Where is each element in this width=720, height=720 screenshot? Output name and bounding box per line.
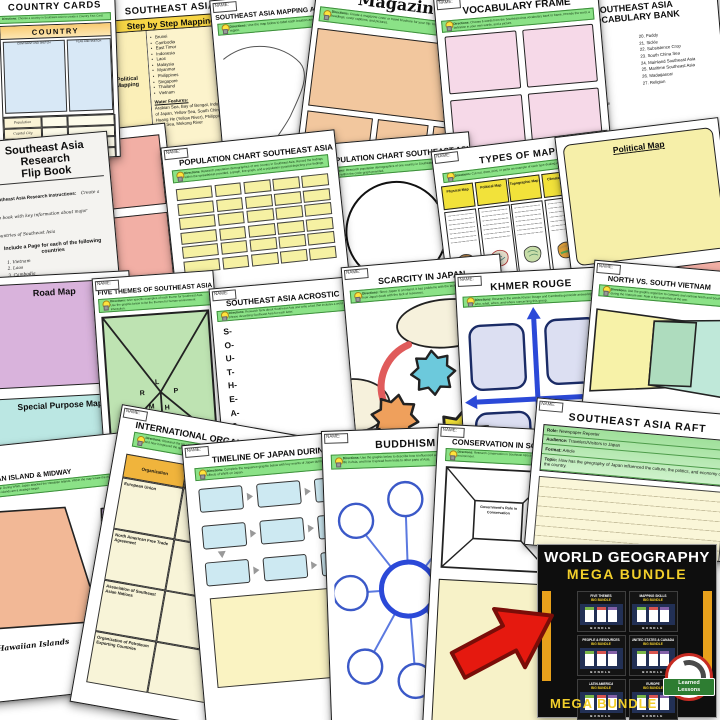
red-arrow-arc [378, 345, 414, 402]
mini-page [597, 607, 606, 622]
vocab-list-right: 20. Paddy21. Sickle22. Subsistence Crop2… [638, 18, 720, 124]
name-field: NAME: [324, 433, 349, 443]
bundle-footer: BUNDLE [590, 714, 612, 718]
raft-field-label: Audience: [546, 437, 568, 444]
bundle-footer: BUNDLE [642, 626, 664, 630]
theme-letter: P [173, 388, 178, 395]
sketch-box-continent: CONTINENT AND SKETCH [3, 40, 67, 114]
sequence-box [259, 517, 305, 545]
logo-banner: Learned Lessons [663, 678, 715, 696]
grid-cell [249, 237, 277, 252]
grid-cell [216, 197, 244, 212]
raft-field-label: Role: [547, 427, 558, 433]
lightbulb-icon [448, 450, 456, 460]
bundle-subtitle: BIG BUNDLE [591, 642, 611, 646]
grid-cell [179, 214, 216, 230]
compare-contrast-diagram [587, 301, 720, 409]
directions-text: Give specific examples of each theme for… [110, 293, 203, 311]
bundle-subtitle: BIG BUNDLE [591, 598, 611, 602]
lightbulb-icon [220, 24, 228, 35]
raft-field-value: Article [562, 448, 575, 454]
grid-cell [248, 223, 276, 238]
name-field: NAME: [457, 276, 482, 287]
lightbulb-icon [101, 300, 109, 310]
grid-cell [307, 231, 335, 246]
mini-page [637, 607, 646, 622]
directions-label: Directions: [454, 172, 471, 178]
grid-cell [220, 240, 248, 255]
grid-cell [177, 200, 214, 216]
arrow-right-icon [311, 561, 318, 569]
bundle-preview [580, 604, 623, 625]
lightbulb-icon [322, 9, 330, 20]
name-field: NAME: [539, 401, 564, 413]
gear-icon [409, 349, 457, 397]
name-field: NAME: [596, 263, 621, 275]
lightbulb-icon [444, 21, 452, 32]
bundle-subtitle: BIG BUNDLE [643, 598, 663, 602]
sketch-label: FLAG AND SKETCH [68, 39, 110, 43]
arrow-right-icon [250, 529, 257, 537]
bundle-footer: BUNDLE [642, 670, 664, 674]
lightbulb-icon [175, 171, 183, 182]
bundle-subtitle: BIG BUNDLE [643, 686, 663, 690]
name-field: NAME: [95, 280, 120, 291]
arrow-right-icon [247, 492, 254, 500]
grid-cell [275, 205, 303, 220]
logo-text-line1: Learned [664, 680, 714, 687]
bundle-thumbnail[interactable]: MAPPING SKILLS BIG BUNDLE BUNDLE [629, 591, 678, 632]
grid-cell [274, 191, 302, 206]
sequence-box [198, 485, 244, 513]
org-name: Organization of Petroleum Exporting Coun… [86, 631, 156, 693]
frame-box [444, 30, 520, 94]
mini-page [660, 695, 669, 710]
lightbulb-icon [445, 172, 453, 183]
directions-text: Choose a country in Southeast Asia to cr… [18, 13, 104, 20]
bundle-subtitle: BIG BUNDLE [643, 642, 663, 646]
lightbulb-icon [353, 291, 361, 302]
grid-cell [272, 176, 300, 191]
bundle-thumbnail[interactable]: PEOPLE & RESOURCES BIG BUNDLE BUNDLE [577, 635, 626, 676]
grid-cell [280, 248, 308, 263]
political-map-box: Political Map [562, 127, 720, 266]
bundle-footer: BUNDLE [590, 626, 612, 630]
logo-text-line2: Lessons [664, 687, 714, 694]
lightbulb-icon [197, 469, 205, 480]
grid-cell [182, 243, 219, 259]
frame-box [522, 24, 598, 88]
arrow-right-icon [304, 487, 311, 495]
raft-field-label: Format: [545, 446, 562, 452]
arrow-left-head [465, 395, 478, 410]
bundle-footer: BUNDLE [590, 670, 612, 674]
mini-page [585, 651, 594, 666]
sequence-box [205, 559, 251, 587]
raft-field-value: Newspaper Reporter [559, 428, 600, 437]
map-type-header: Topographic Map [507, 174, 542, 202]
grid-cell [222, 254, 250, 269]
grid-cell [251, 251, 279, 266]
population-grid [176, 173, 337, 273]
promo-footer: MEGA BUNDLE [550, 696, 657, 711]
mini-page [585, 607, 594, 622]
sheet-raft: NAME: SOUTHEAST ASIA RAFT Role: Newspape… [524, 397, 720, 562]
grid-cell [246, 208, 274, 223]
grid-cell [243, 179, 271, 194]
sketch-label: CONTINENT AND SKETCH [4, 41, 64, 46]
theme-letter: H [165, 404, 171, 411]
arrow-down-icon [218, 551, 227, 559]
instructions-label: Southeast Asia Research Instructions: [0, 191, 77, 203]
bundle-subtitle: BIG BUNDLE [591, 686, 611, 690]
map-type-header: Physical Map [441, 183, 476, 211]
learned-lessons-logo[interactable]: Learned Lessons [665, 653, 713, 701]
grid-cell [304, 202, 332, 217]
sequence-box [262, 554, 308, 582]
mini-page [649, 607, 658, 622]
arrow-right-icon [308, 524, 315, 532]
promo-heading: WORLD GEOGRAPHY [538, 545, 716, 566]
grid-cell [180, 229, 217, 245]
map-type-header: Political Map [474, 178, 509, 206]
name-field: NAME: [440, 427, 465, 438]
mini-page [660, 651, 669, 666]
directions-label: Directions: [2, 16, 17, 21]
grid-cell [306, 216, 334, 231]
sketch-box-flag: FLAG AND SKETCH [67, 38, 113, 111]
arrow-up-head [526, 307, 541, 320]
worksheet-collage: SOUTHEAST ASIA Step by Step Mapping Poli… [0, 0, 720, 720]
political-map-label: Political Map [563, 128, 713, 161]
mini-page [608, 651, 617, 666]
grid-cell [245, 194, 273, 209]
grid-cell [303, 188, 331, 203]
lightbulb-icon [601, 285, 609, 296]
lightbulb-icon [466, 297, 474, 307]
bundle-thumbnail[interactable]: FIVE THEMES BIG BUNDLE BUNDLE [577, 591, 626, 632]
topographic-map-icon [521, 242, 545, 265]
grid-cell [217, 211, 245, 226]
lightbulb-icon [220, 311, 228, 322]
mini-page [608, 607, 617, 622]
grid-cell [301, 173, 329, 188]
grid-cell [277, 220, 305, 235]
mini-page [660, 607, 669, 622]
mini-page [649, 651, 658, 666]
mini-page [637, 651, 646, 666]
grid-cell [176, 185, 213, 201]
grid-cell [278, 234, 306, 249]
lightbulb-icon [334, 457, 341, 467]
grid-cell [219, 226, 247, 241]
grid-cell [214, 182, 242, 197]
bundle-preview [580, 648, 623, 669]
arrow-right-icon [253, 566, 260, 574]
sequence-box [256, 480, 302, 508]
bundle-preview [632, 604, 675, 625]
grid-cell [309, 245, 337, 260]
bundle-footer: BUNDLE [642, 714, 664, 718]
theme-letter: R [140, 390, 146, 397]
mini-page [597, 651, 606, 666]
promo-subheading: MEGA BUNDLE [538, 566, 716, 582]
sequence-box [201, 522, 247, 550]
